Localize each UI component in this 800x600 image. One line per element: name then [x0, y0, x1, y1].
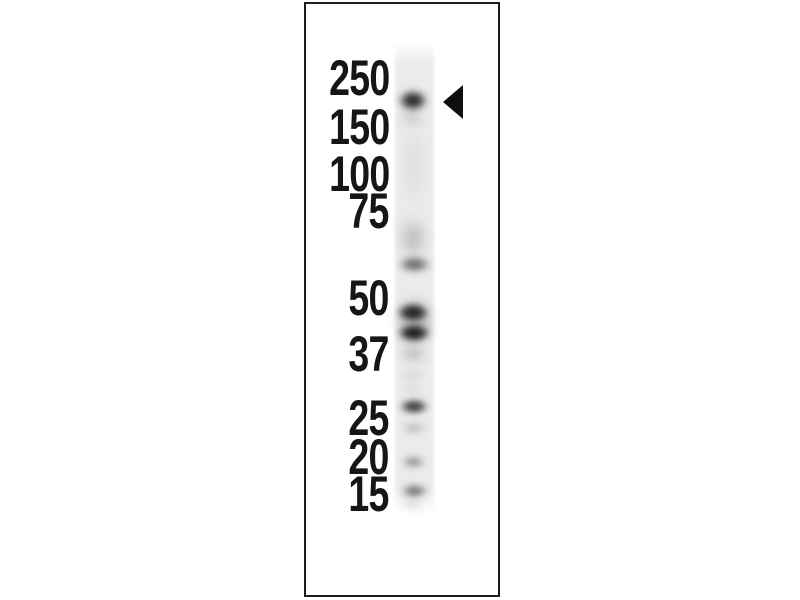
band-5-faint	[401, 423, 427, 433]
band-3b	[396, 323, 432, 343]
band-6	[401, 456, 426, 468]
spot-faint-1	[401, 370, 425, 379]
marker-label-15: 15	[349, 469, 389, 519]
marker-label-150: 150	[329, 102, 389, 152]
western-blot-figure: 250150100755037252015	[0, 0, 800, 600]
band-3a	[395, 302, 431, 323]
band-4	[398, 398, 430, 415]
smear-upper-lane	[401, 118, 427, 213]
smear-mid	[399, 216, 427, 260]
band-7-tail	[401, 500, 425, 508]
arrowhead-icon	[443, 85, 463, 119]
marker-label-250: 250	[329, 53, 389, 103]
band-7	[400, 484, 429, 498]
marker-label-50: 50	[349, 273, 389, 323]
marker-label-37: 37	[349, 329, 389, 379]
spot-faint-2	[402, 385, 424, 393]
band-top-arrowed	[397, 89, 429, 112]
band-2	[397, 256, 432, 273]
band-3-tail	[398, 348, 428, 360]
marker-label-75: 75	[349, 186, 389, 236]
